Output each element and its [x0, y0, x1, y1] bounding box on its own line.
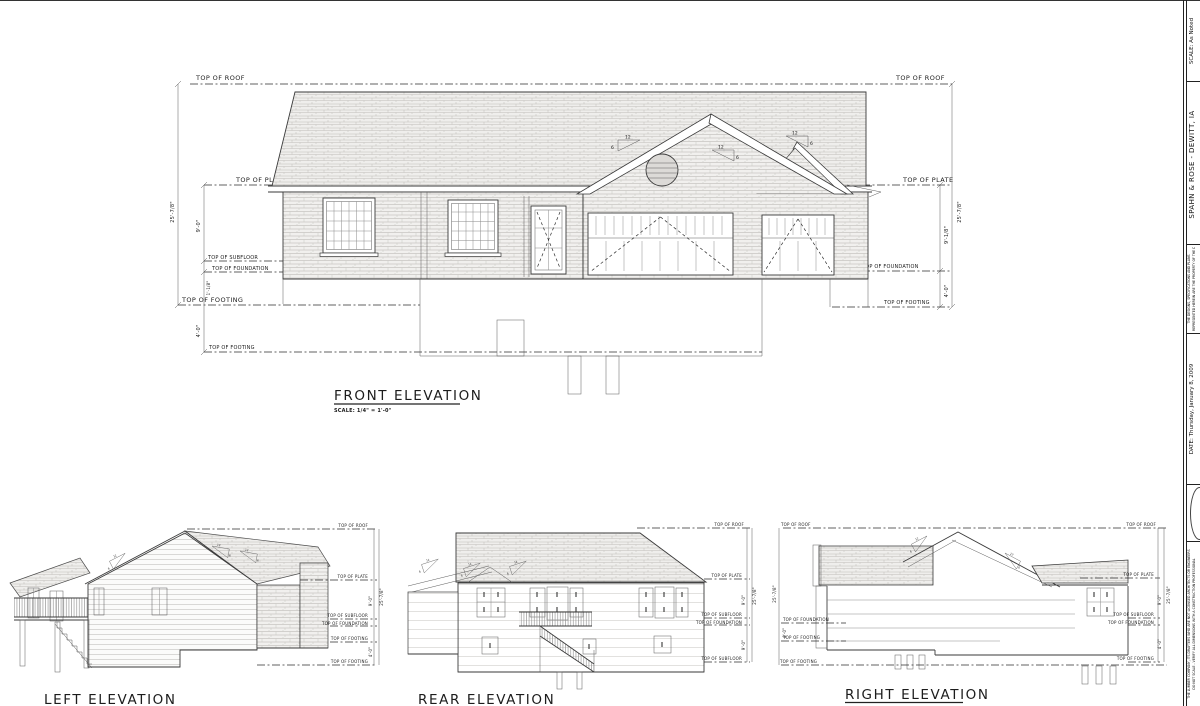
- level-label-foundation: TOP OF FOUNDATION: [695, 620, 742, 625]
- front-elevation-title: FRONT ELEVATION: [334, 388, 483, 404]
- dim-overall: 25'-7/8": [772, 585, 777, 603]
- dim-foundation-footing: 4'-0": [368, 647, 373, 657]
- dim-main-floor: 9'-0": [741, 595, 746, 605]
- svg-text:6: 6: [107, 566, 111, 570]
- rear-elevation-title: REAR ELEVATION: [418, 692, 555, 706]
- deck-railing: [519, 612, 592, 626]
- deck-railing: [14, 598, 88, 620]
- dim-overall: 25'-7/8": [170, 201, 176, 223]
- dim-main-floor: 9'-0": [368, 596, 373, 606]
- svg-text:12: 12: [113, 553, 118, 558]
- dim-overall: 25'-7/8": [752, 587, 757, 605]
- dim-overall: 25'-7/8": [957, 201, 963, 223]
- dim-plate-foundation: 9'-1/8": [944, 226, 950, 244]
- level-label-subfloor: TOP OF SUBFLOOR: [700, 612, 742, 617]
- dim-foundation-footing: 4'-0": [196, 325, 202, 338]
- titleblock-date: DATE: Thursday, January 8, 2009: [1189, 337, 1199, 481]
- dim-foundation-footing: 4'-0": [1157, 639, 1162, 649]
- titleblock-scale-note: SCALE: As Noted: [1189, 3, 1199, 79]
- elevations-drawing: TOP OF ROOF TOP OF ROOF TOP OF PLATE TOP…: [0, 0, 1200, 706]
- brick-step: [257, 585, 300, 648]
- level-label-plate: TOP OF PLATE: [710, 573, 742, 578]
- window: [445, 200, 501, 257]
- right-elevation-title: RIGHT ELEVATION: [845, 687, 990, 703]
- titleblock-border: [1183, 0, 1184, 706]
- titleblock-divider: [1186, 333, 1200, 334]
- level-label-foundation: TOP OF FOUNDATION: [1107, 620, 1154, 625]
- level-label-roof: TOP OF ROOF: [337, 523, 368, 528]
- garage-door-double: [588, 213, 733, 275]
- svg-text:6: 6: [810, 141, 813, 147]
- window: [320, 198, 378, 257]
- dim-foundation-footing: 4'-0": [782, 628, 787, 638]
- level-label-footing: TOP OF FOOTING: [181, 296, 243, 304]
- main-roof: [456, 533, 706, 582]
- level-label-foundation: TOP OF FOUNDATION: [782, 617, 829, 622]
- dim-foundation-footing: 4'-0": [944, 285, 950, 298]
- svg-text:12: 12: [718, 145, 724, 151]
- deck-post: [20, 620, 25, 666]
- level-label-foundation: TOP OF FOUNDATION: [211, 266, 269, 272]
- pier-footing: [568, 356, 581, 394]
- level-label-plate: TOP OF PLATE: [902, 176, 954, 184]
- level-label-foundation: TOP OF FOUNDATION: [321, 621, 368, 626]
- level-label-subfloor: TOP OF SUBFLOOR: [326, 613, 368, 618]
- pitch-marker: 12 6: [416, 555, 441, 574]
- left-elevation-title: LEFT ELEVATION: [44, 692, 177, 706]
- titleblock-divider: [1186, 541, 1200, 542]
- deck-stairs: [55, 622, 92, 668]
- level-label-roof: TOP OF ROOF: [895, 74, 945, 82]
- pier: [919, 655, 925, 669]
- level-label-footing: TOP OF FOOTING: [208, 345, 255, 351]
- pier-footing: [606, 356, 619, 394]
- rear-elevation: 12 6 12 6 12 6 TOP OF ROOF TOP OF PLATE …: [408, 522, 757, 706]
- titleblock-notice-top-line2: REPRESENTED HEREIN ARE THE PROPERTY OF T…: [1192, 247, 1197, 331]
- garage-door-single: [762, 215, 834, 275]
- dim-subfloor-foundation: 1'-1/8": [206, 281, 211, 296]
- level-label-roof: TOP OF ROOF: [713, 522, 744, 527]
- window: [1087, 588, 1114, 616]
- pier: [907, 655, 913, 669]
- deck-post: [557, 672, 562, 689]
- front-elevation: TOP OF ROOF TOP OF ROOF TOP OF PLATE TOP…: [170, 74, 963, 414]
- dim-main-floor: 9'-0": [196, 220, 202, 233]
- svg-text:12: 12: [792, 131, 798, 137]
- level-label-plate: TOP OF PLATE: [336, 574, 368, 579]
- svg-text:12: 12: [625, 135, 631, 141]
- left-elevation: 12 6 12 6 12 6 TOP OF ROOF TOP OF PLATE …: [10, 523, 384, 706]
- level-label-foundation: TOP OF FOUNDATION: [861, 264, 919, 270]
- front-elevation-scale: SCALE: 1/4" = 1'-0": [334, 408, 392, 414]
- pitch-marker: 12 6: [1001, 549, 1025, 570]
- level-label-footing: TOP OF FOOTING: [782, 635, 820, 640]
- svg-text:12: 12: [1009, 552, 1014, 557]
- titleblock-project: SPAHN & ROSE - DEWITT, IA: [1188, 87, 1199, 242]
- right-elevation: 12 6 12 6 TOP OF ROOF TOP OF ROOF TOP OF…: [772, 522, 1171, 703]
- dim-main-floor: 9'-0": [1157, 595, 1162, 605]
- level-label-subfloor: TOP OF SUBFLOOR: [700, 656, 742, 661]
- titleblock-divider: [1186, 81, 1200, 82]
- level-label-plate: TOP OF PLATE: [1122, 572, 1154, 577]
- dim-basement: 9'-0": [741, 640, 746, 650]
- titleblock-divider: [1186, 484, 1200, 485]
- deck-post: [577, 672, 582, 689]
- titleblock-divider: [1186, 244, 1200, 245]
- level-label-footing: TOP OF FOOTING: [779, 659, 817, 664]
- svg-text:6: 6: [418, 569, 421, 573]
- wing-wall: [408, 592, 458, 654]
- level-label-roof: TOP OF ROOF: [780, 522, 811, 527]
- right-roof-band: [1032, 560, 1128, 583]
- pier: [895, 655, 901, 669]
- porch-footing: [497, 320, 524, 356]
- level-label-footing: TOP OF FOOTING: [330, 636, 368, 641]
- level-label-subfloor: TOP OF SUBFLOOR: [207, 255, 258, 261]
- gable-vent-icon: [646, 154, 678, 186]
- front-door: [531, 206, 566, 274]
- level-label-footing: TOP OF FOOTING: [883, 300, 930, 306]
- pier: [1110, 666, 1116, 684]
- level-label-footing: TOP OF FOOTING: [330, 659, 368, 664]
- pier: [1082, 666, 1088, 684]
- svg-text:12: 12: [914, 536, 919, 541]
- pier: [1096, 666, 1102, 684]
- level-label-roof: TOP OF ROOF: [1125, 522, 1156, 527]
- level-label-footing: TOP OF FOOTING: [1116, 656, 1154, 661]
- svg-text:6: 6: [611, 145, 614, 151]
- deck-post: [55, 622, 60, 672]
- svg-text:6: 6: [736, 155, 739, 161]
- titleblock-notice-bottom-line2: DO NOT SCALE - VERIFY ALL DIMENSIONS WIT…: [1192, 544, 1197, 704]
- dim-overall: 25'-7/8": [1166, 586, 1171, 604]
- level-label-subfloor: TOP OF SUBFLOOR: [1112, 612, 1154, 617]
- level-label-roof: TOP OF ROOF: [195, 74, 245, 82]
- brick-step: [300, 563, 328, 648]
- dim-overall: 25'-7/8": [379, 588, 384, 606]
